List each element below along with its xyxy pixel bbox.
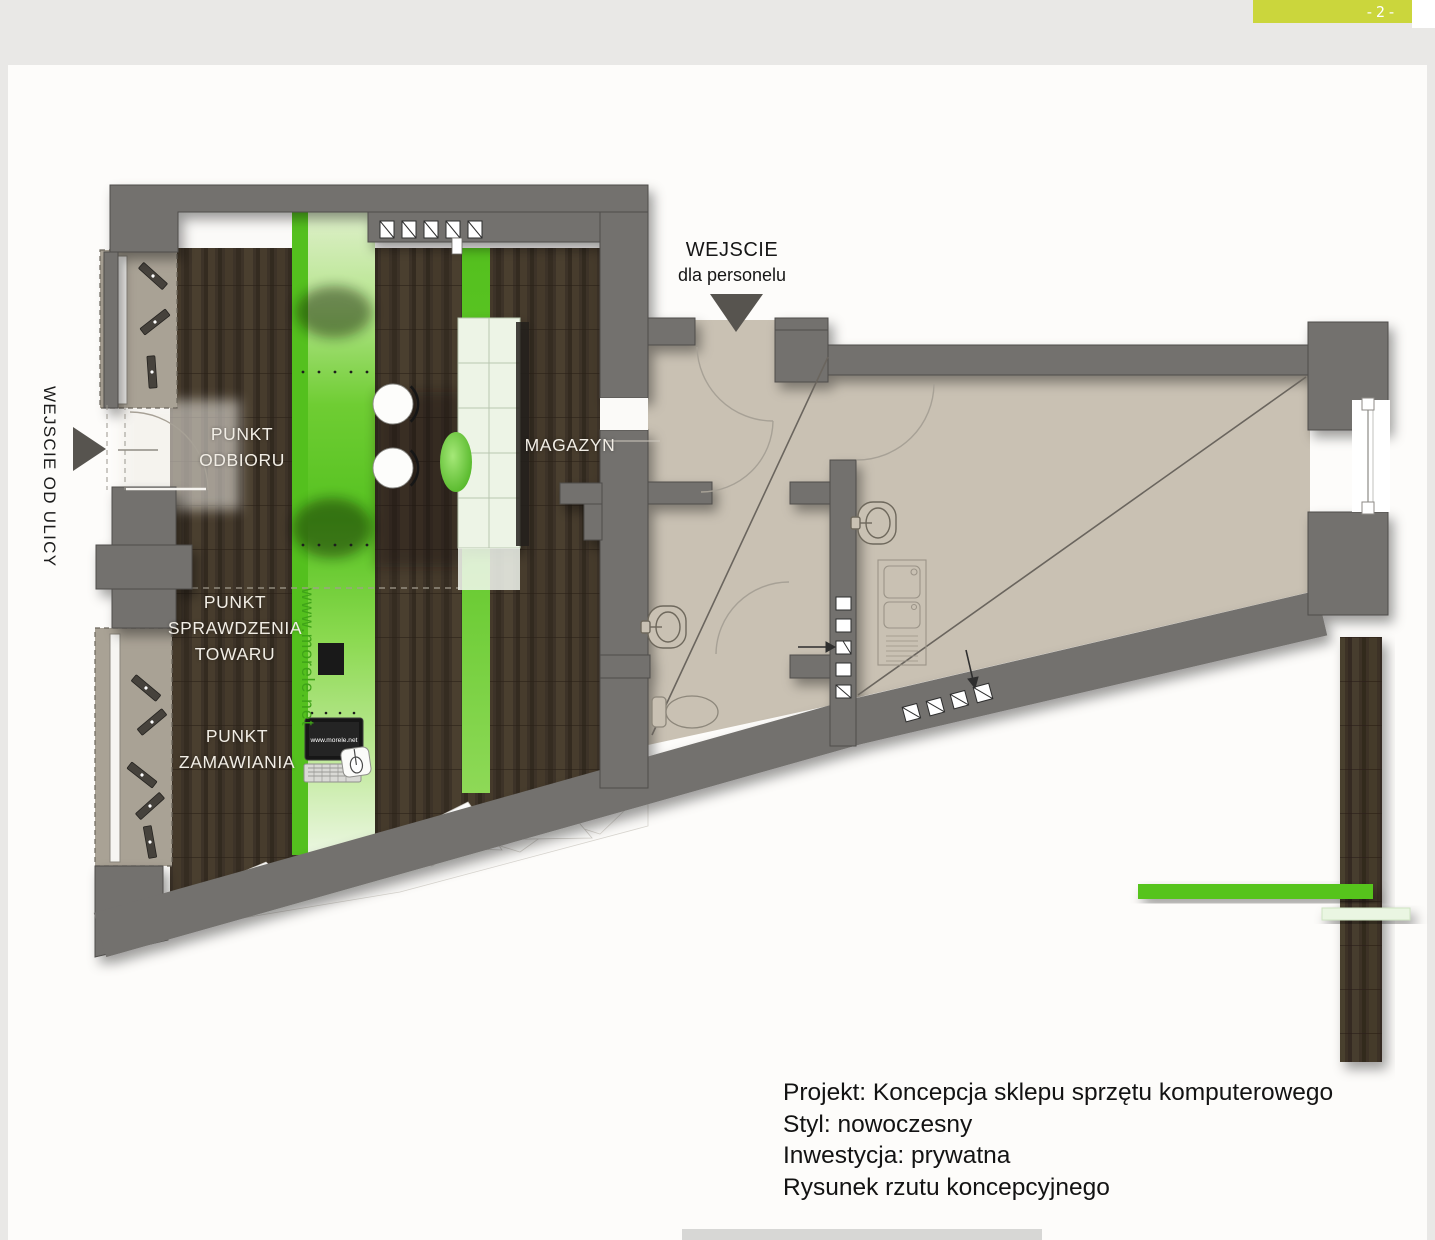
bottom-edge-strip: [682, 1229, 1042, 1240]
pale-green-sample-bar: [1322, 908, 1410, 920]
staff-entrance-line1: WEJSCIE: [632, 239, 832, 262]
green-sample-bar: [1138, 884, 1373, 899]
staff-entrance-line2: dla personelu: [632, 265, 832, 286]
project-info-block: Projekt: Koncepcja sklepu sprzętu komput…: [783, 1077, 1383, 1203]
project-style: Styl: nowoczesny: [783, 1109, 1383, 1141]
toilet: [652, 696, 718, 728]
counter-base: [458, 548, 520, 590]
material-samples: [1138, 637, 1410, 1062]
room-label-pickup-point: PUNKT ODBIORU: [167, 421, 317, 473]
project-investment: Inwestycja: prywatna: [783, 1140, 1383, 1172]
room-label-order-point: PUNKT ZAMAWIANIA: [152, 723, 322, 775]
street-entrance-arrow: [73, 427, 106, 471]
project-drawing-type: Rysunek rzutu koncepcyjnego: [783, 1172, 1383, 1204]
page-number: -2-: [1365, 3, 1398, 21]
magazyn-door-gap: [600, 398, 648, 430]
room-label-storage: MAGAZYN: [518, 432, 622, 458]
green-lens: [440, 432, 472, 492]
staff-entrance-label: WEJSCIE dla personelu: [632, 239, 832, 286]
project-title: Projekt: Koncepcja sklepu sprzętu komput…: [783, 1077, 1383, 1109]
tab-corner: [1412, 0, 1435, 28]
mouse-icon: [340, 746, 372, 778]
right-window: [1352, 398, 1390, 514]
wood-sample-strip: [1340, 637, 1382, 1062]
street-entrance-label: WEJSCIE OD ULICY: [39, 386, 59, 616]
page-number-tab: -2-: [1253, 0, 1412, 23]
room-label-check-point: PUNKT SPRAWDZENIA TOWARU: [146, 589, 324, 667]
